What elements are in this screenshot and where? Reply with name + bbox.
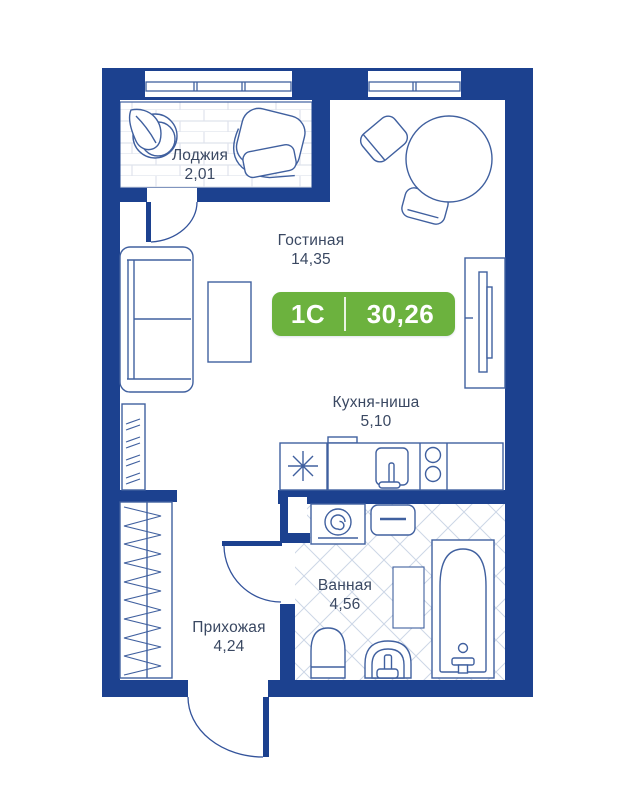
- sofa: [120, 247, 193, 392]
- dining-chair: [357, 112, 411, 165]
- room-area: 4,24: [159, 637, 299, 656]
- kitchen-vent: [328, 437, 357, 443]
- room-area: 14,35: [241, 250, 381, 269]
- wall-kitchen-bath: [278, 490, 533, 504]
- tv-stand: [465, 258, 505, 388]
- loggia-door-opening: [147, 188, 197, 202]
- bathtub-tap: [459, 644, 468, 653]
- floor-plan-page: Лоджия 2,01 Гостиная 14,35 Кухня-ниша 5,…: [0, 0, 635, 800]
- entrance-door: [188, 697, 269, 757]
- tv-icon: [479, 272, 487, 372]
- wall-hallway-stub: [102, 490, 177, 502]
- room-name: Гостиная: [241, 231, 381, 250]
- room-label-hallway: Прихожая 4,24: [159, 618, 299, 656]
- room-name: Прихожая: [159, 618, 299, 637]
- wall-loggia-separator: [312, 100, 330, 188]
- bathroom-door-leaf: [222, 541, 282, 546]
- room-label-loggia: Лоджия 2,01: [130, 146, 270, 184]
- loggia-door-leaf: [146, 202, 151, 242]
- room-label-kitchen: Кухня-ниша 5,10: [306, 393, 446, 431]
- wall-right: [505, 100, 533, 697]
- wall-left: [102, 100, 120, 697]
- bathtub: [432, 540, 494, 678]
- room-label-living: Гостиная 14,35: [241, 231, 381, 269]
- room-label-bathroom: Ванная 4,56: [275, 576, 415, 614]
- room-area: 5,10: [306, 412, 446, 431]
- wall-bath-notch-bar: [280, 533, 310, 543]
- bathroom-door: [222, 541, 282, 602]
- fridge: [280, 443, 327, 490]
- room-name: Ванная: [275, 576, 415, 595]
- kitchen-faucet: [389, 463, 394, 484]
- unit-type: 1C: [272, 292, 344, 336]
- room-area: 4,56: [275, 595, 415, 614]
- stove-burner: [426, 448, 441, 463]
- loggia-door-arc: [151, 202, 197, 242]
- vent-shaft-notch: [288, 497, 307, 533]
- unit-badge: 1C 30,26: [272, 292, 455, 336]
- dresser: [122, 404, 145, 490]
- shelf: [371, 505, 415, 535]
- stove-burner: [426, 467, 441, 482]
- toilet: [311, 628, 345, 678]
- room-name: Лоджия: [130, 146, 270, 165]
- kitchen-counter: [328, 437, 503, 490]
- coffee-table: [208, 282, 251, 362]
- entrance-door-arc: [188, 697, 263, 757]
- entrance-door-opening: [188, 680, 268, 697]
- washing-machine: [311, 504, 365, 544]
- room-area: 2,01: [130, 165, 270, 184]
- room-name: Кухня-ниша: [306, 393, 446, 412]
- window-loggia: [146, 82, 291, 91]
- bathroom-door-arc: [224, 546, 281, 602]
- bath-sink: [365, 641, 411, 678]
- dining-table: [406, 116, 492, 202]
- window-living: [369, 82, 460, 91]
- wall-bottom: [120, 680, 505, 697]
- unit-total-area: 30,26: [346, 292, 455, 336]
- loggia-door: [146, 202, 197, 242]
- entrance-door-leaf: [263, 697, 269, 757]
